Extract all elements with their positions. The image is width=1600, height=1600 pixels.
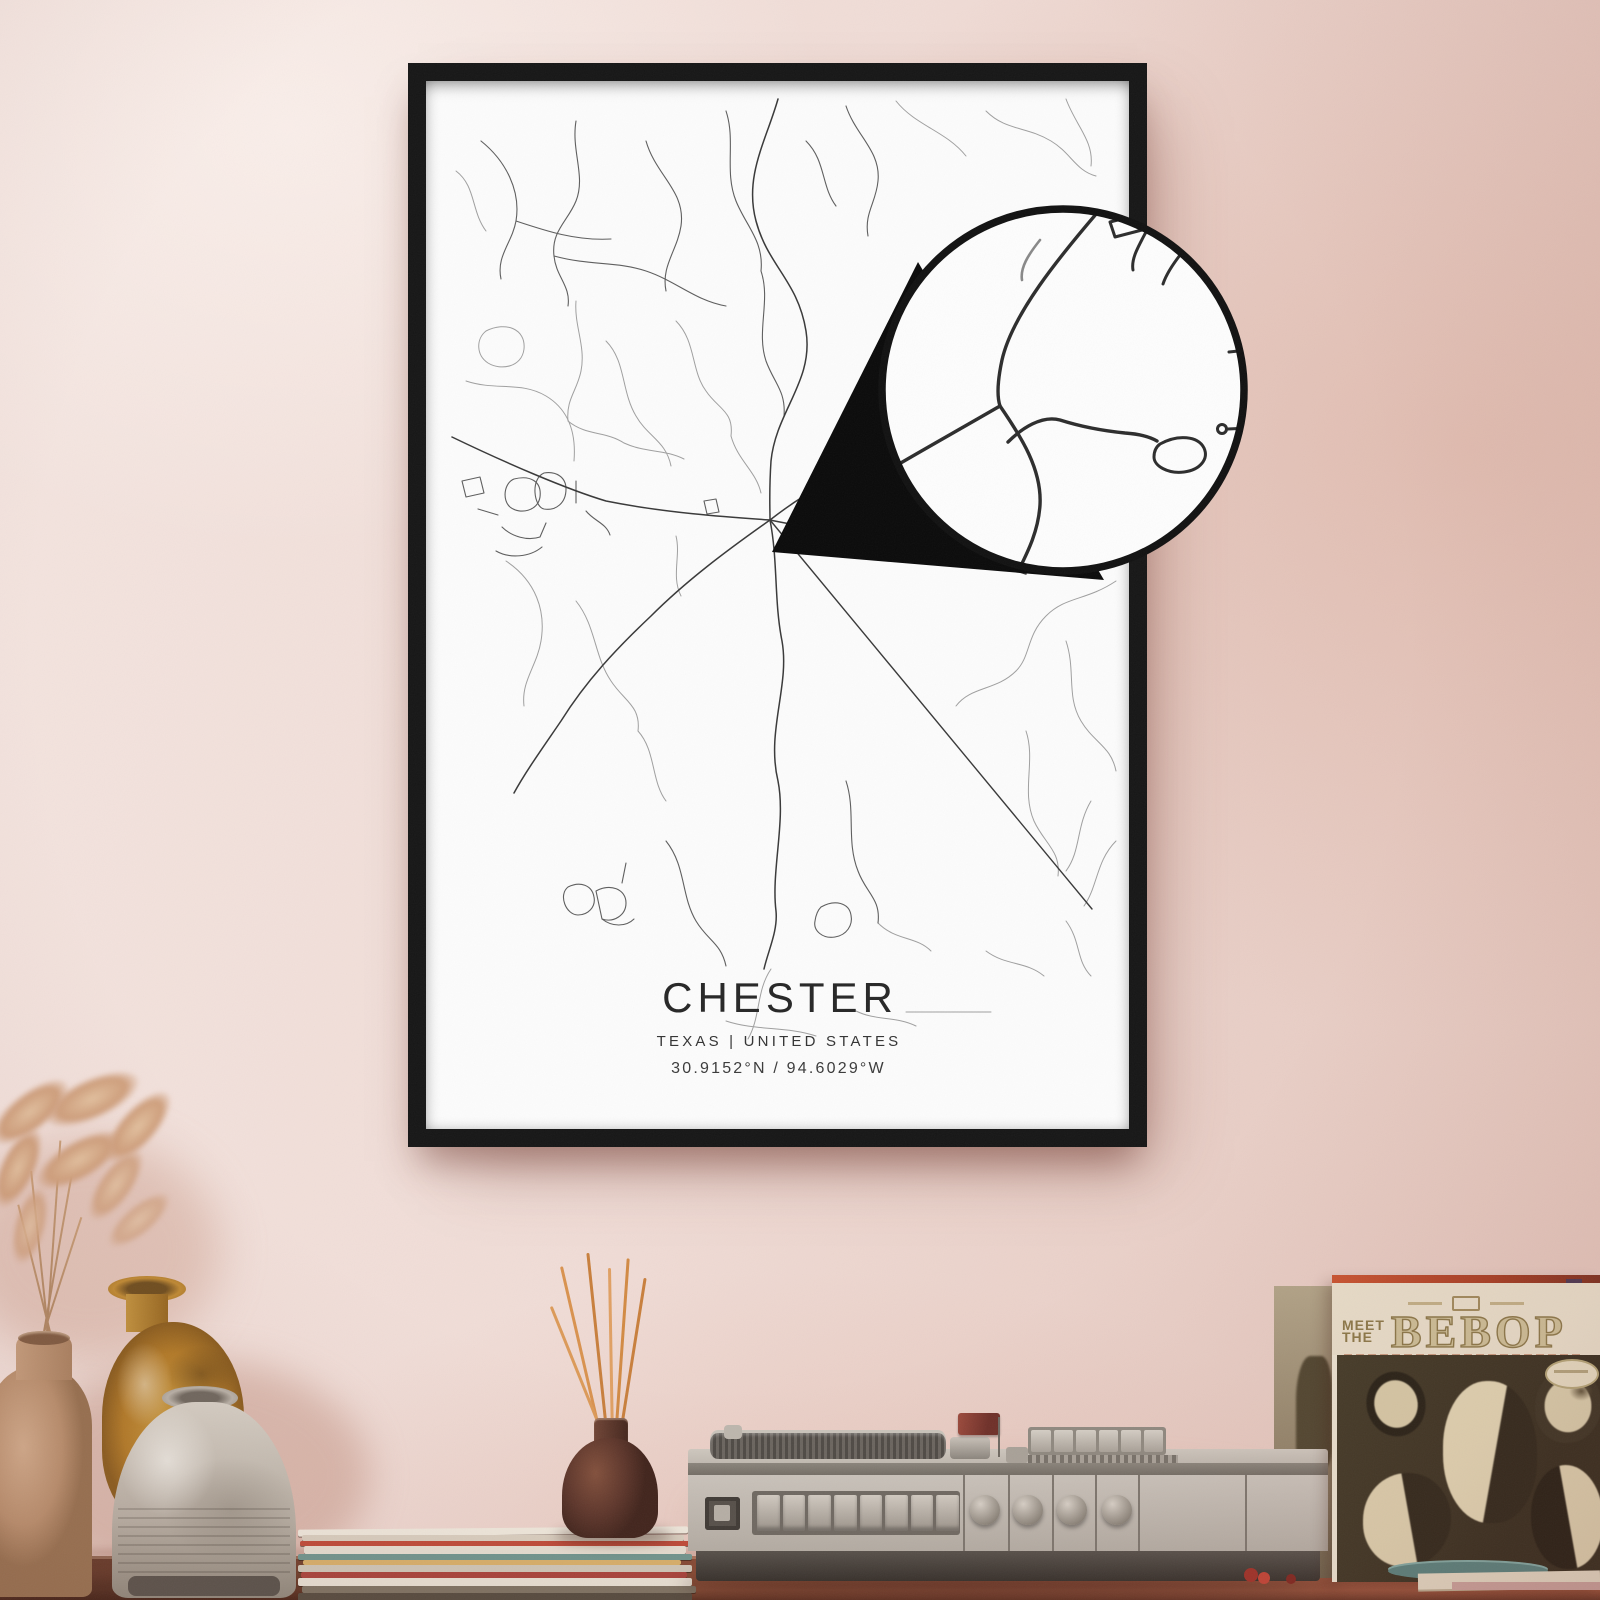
face-art <box>1363 1473 1451 1567</box>
deck-keys <box>1028 1427 1166 1455</box>
platter-lever <box>724 1425 742 1439</box>
pushbutton <box>783 1495 806 1531</box>
room-scene: CHESTER TEXAS | UNITED STATES 30.9152°N … <box>0 0 1600 1600</box>
deck-key <box>1144 1430 1164 1452</box>
tonearm-rod <box>998 1417 1000 1457</box>
vase-tan-body <box>0 1366 92 1597</box>
panel-divider <box>1138 1475 1140 1551</box>
sleeve-title: BEBOP <box>1391 1313 1567 1351</box>
rotary-knob <box>1102 1495 1132 1525</box>
record-sleeve: MEET THE BEBOP <box>1332 1275 1600 1582</box>
pushbutton <box>885 1495 908 1531</box>
tonearm-cartridge <box>958 1413 1000 1435</box>
face-art <box>1443 1381 1537 1523</box>
panel-divider <box>1052 1475 1054 1551</box>
tonearm-base <box>950 1437 990 1459</box>
vase-gray-foot <box>128 1576 280 1596</box>
poster-coordinates: 30.9152°N / 94.6029°W <box>426 1060 1129 1078</box>
deck-key <box>1031 1430 1051 1452</box>
face-art <box>1531 1465 1600 1569</box>
sleeve-meet-line2: THE <box>1342 1331 1385 1343</box>
magazine <box>298 1565 692 1572</box>
pushbutton <box>808 1495 831 1531</box>
vase-gray-grooves <box>118 1508 290 1578</box>
turntable-platter <box>710 1433 946 1459</box>
rotary-knob <box>970 1495 1000 1525</box>
player-base <box>696 1551 1320 1581</box>
flat-record-pink <box>1452 1582 1600 1590</box>
panel-divider <box>1245 1475 1247 1551</box>
panel-divider <box>1008 1475 1010 1551</box>
diffuser-bottle <box>562 1438 658 1538</box>
poster-subtitle: TEXAS | UNITED STATES <box>426 1033 1129 1050</box>
pushbutton <box>936 1495 959 1531</box>
power-button <box>705 1497 740 1530</box>
fineprint-mark <box>1490 1302 1524 1305</box>
deck-key <box>1054 1430 1074 1452</box>
spindle-adapter <box>1006 1447 1028 1463</box>
pushbutton <box>834 1495 857 1531</box>
deck-key <box>1076 1430 1096 1452</box>
map-poster: CHESTER TEXAS | UNITED STATES 30.9152°N … <box>426 81 1129 1129</box>
red-bead <box>1244 1568 1258 1582</box>
red-bead <box>1258 1572 1270 1584</box>
pushbutton <box>757 1495 780 1531</box>
panel-divider <box>963 1475 965 1551</box>
map-roads-main <box>452 99 1092 969</box>
face-art <box>1349 1354 1443 1454</box>
rotary-knob <box>1057 1495 1087 1525</box>
map-roads-medium <box>462 106 878 966</box>
fineprint-mark <box>1408 1302 1442 1305</box>
sleeve-artwork-panel <box>1332 1355 1600 1582</box>
preset-pushbuttons <box>757 1495 959 1531</box>
magazine <box>298 1593 692 1600</box>
panel-divider <box>1095 1475 1097 1551</box>
red-bead <box>1286 1574 1296 1584</box>
sleeve-badge <box>1545 1359 1599 1389</box>
vase-tan-rim <box>18 1331 70 1345</box>
sleeve-header: MEET THE BEBOP <box>1332 1283 1600 1355</box>
deck-key <box>1121 1430 1141 1452</box>
pushbutton <box>860 1495 883 1531</box>
city-map-graphic <box>426 81 1129 1129</box>
magazine <box>302 1586 696 1593</box>
deck-key <box>1099 1430 1119 1452</box>
magazine <box>298 1578 692 1586</box>
magazine <box>304 1546 686 1554</box>
sleeve-top-stripe <box>1332 1275 1600 1283</box>
record-player <box>688 1413 1328 1589</box>
pushbutton <box>911 1495 934 1531</box>
poster-title: CHESTER <box>426 974 1129 1022</box>
poster-frame: CHESTER TEXAS | UNITED STATES 30.9152°N … <box>408 63 1147 1147</box>
rotary-knob <box>1013 1495 1043 1525</box>
